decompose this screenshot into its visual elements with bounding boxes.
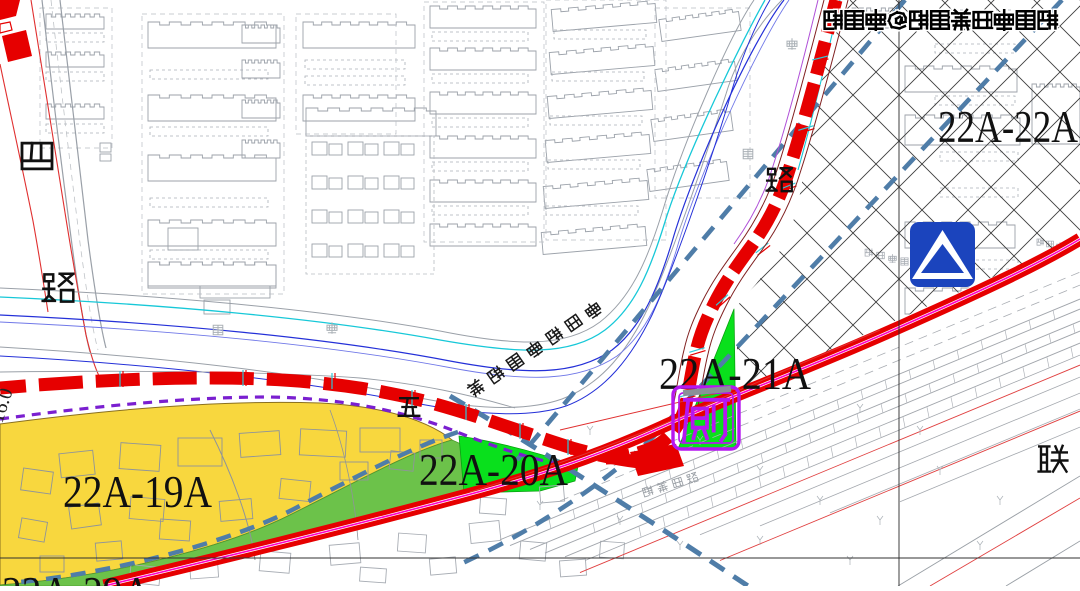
svg-text:22A-21A: 22A-21A	[659, 349, 811, 399]
svg-text:22A-20A: 22A-20A	[419, 445, 568, 495]
svg-text:22A-29A: 22A-29A	[2, 568, 151, 586]
svg-text:22A-22A: 22A-22A	[938, 102, 1078, 152]
svg-text:22A-19A: 22A-19A	[63, 467, 212, 517]
